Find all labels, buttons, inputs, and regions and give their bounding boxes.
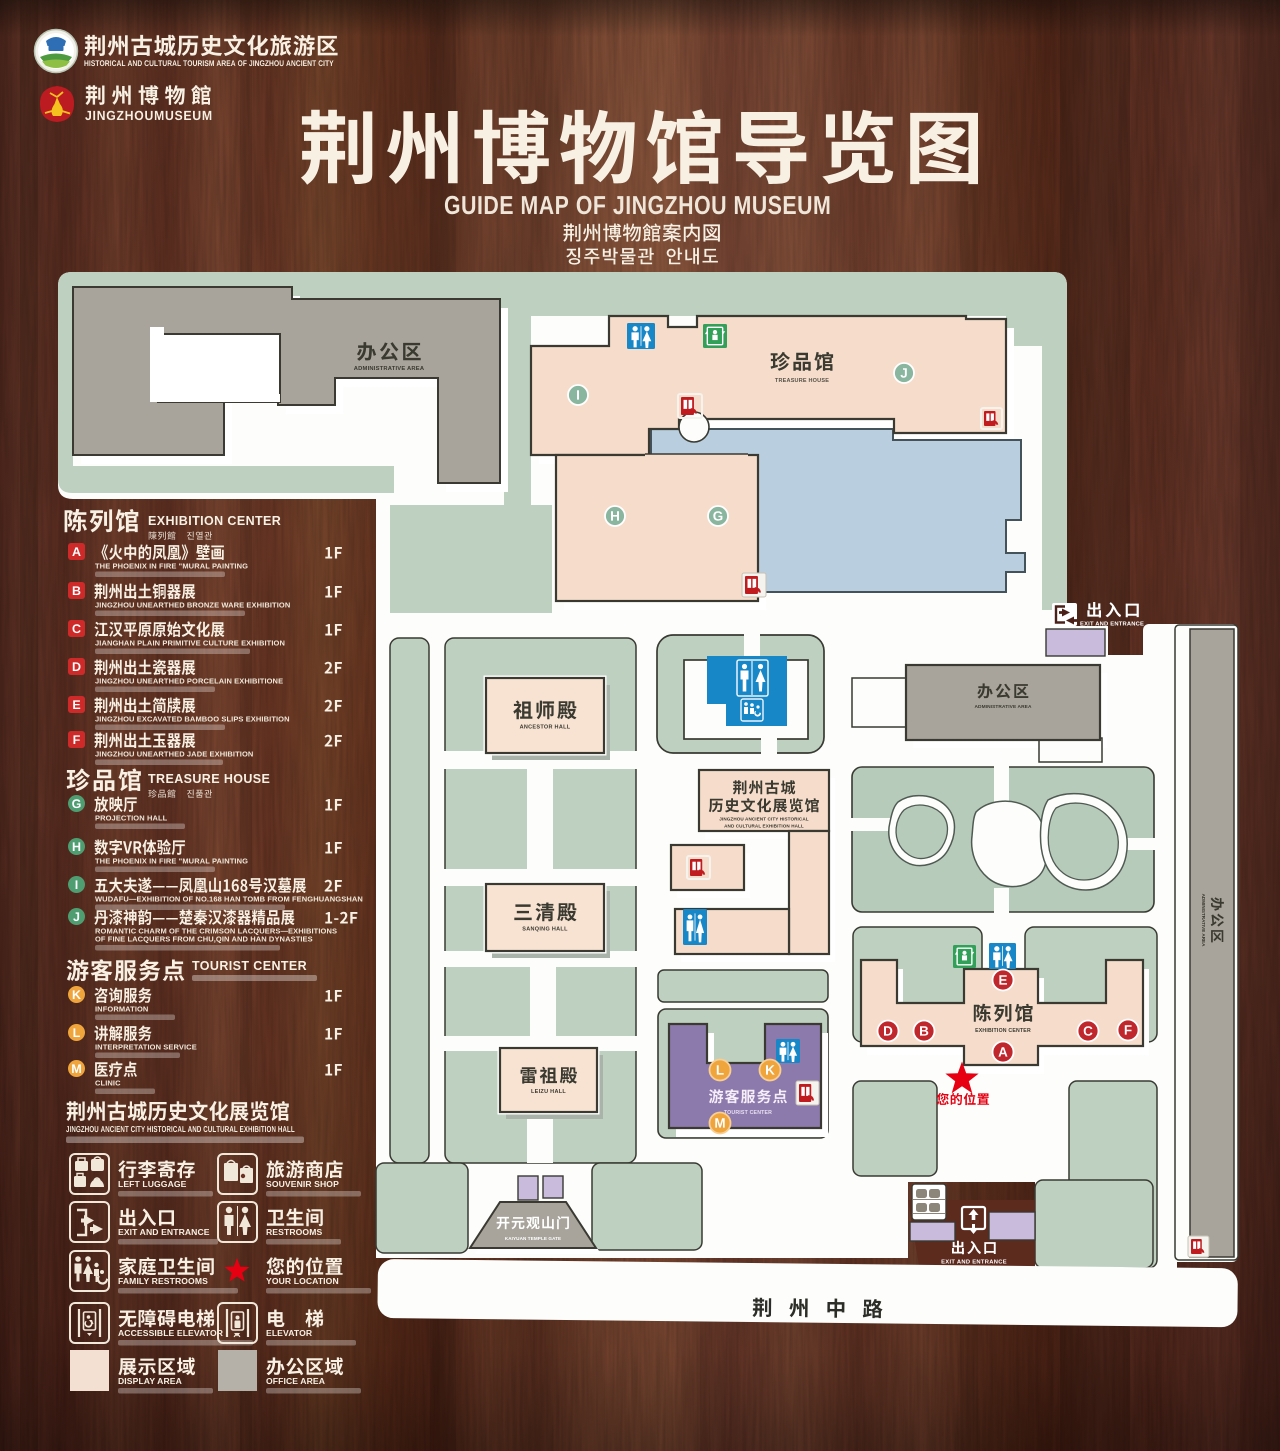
svg-text:EXIT AND ENTRANCE: EXIT AND ENTRANCE xyxy=(1080,622,1144,628)
svg-text:PROJECTION HALL: PROJECTION HALL xyxy=(95,814,168,823)
svg-text:TREASURE HOUSE: TREASURE HOUSE xyxy=(148,772,270,786)
svg-text:FAMILY RESTROOMS: FAMILY RESTROOMS xyxy=(118,1276,208,1286)
svg-text:EXIT AND ENTRANCE: EXIT AND ENTRANCE xyxy=(118,1227,210,1237)
svg-text:WUDAFU—EXHIBITION OF NO.168 HA: WUDAFU—EXHIBITION OF NO.168 HAN TOMB FRO… xyxy=(95,895,363,904)
svg-text:JINGZHOU EXCAVATED BAMBOO SLIP: JINGZHOU EXCAVATED BAMBOO SLIPS EXHIBITI… xyxy=(95,715,290,724)
svg-text:TOURIST CENTER: TOURIST CENTER xyxy=(724,1110,772,1116)
svg-text:KAIYUAN TEMPLE GATE: KAIYUAN TEMPLE GATE xyxy=(505,1236,561,1241)
svg-text:TOURIST CENTER: TOURIST CENTER xyxy=(192,959,307,973)
svg-text:INFORMATION: INFORMATION xyxy=(95,1005,148,1014)
svg-text:THE PHOENIX IN FIRE "MURAL PAI: THE PHOENIX IN FIRE "MURAL PAINTING xyxy=(95,562,248,571)
svg-text:CLINIC: CLINIC xyxy=(95,1079,121,1088)
svg-text:JINGZHOU UNEARTHED PORCELAIN E: JINGZHOU UNEARTHED PORCELAIN EXHIBITIONE xyxy=(95,677,283,686)
svg-text:SANQING HALL: SANQING HALL xyxy=(522,927,568,933)
svg-text:ADMINISTRATIVE AREA: ADMINISTRATIVE AREA xyxy=(1201,894,1206,948)
svg-text:ADMINISTRATIVE AREA: ADMINISTRATIVE AREA xyxy=(974,704,1031,710)
svg-text:JIANGHAN PLAIN PRIMITIVE CULTU: JIANGHAN PLAIN PRIMITIVE CULTURE EXHIBIT… xyxy=(95,639,285,648)
svg-text:OFFICE AREA: OFFICE AREA xyxy=(266,1376,325,1386)
svg-text:LEFT LUGGAGE: LEFT LUGGAGE xyxy=(118,1179,187,1189)
svg-text:THE PHOENIX IN FIRE "MURAL PAI: THE PHOENIX IN FIRE "MURAL PAINTING xyxy=(95,857,248,866)
svg-text:LEIZU HALL: LEIZU HALL xyxy=(531,1089,566,1095)
svg-text:EXIT AND ENTRANCE: EXIT AND ENTRANCE xyxy=(941,1260,1007,1266)
svg-text:JINGZHOU ANCIENT CITY HISTORIC: JINGZHOU ANCIENT CITY HISTORICAL xyxy=(719,817,808,822)
svg-text:INTERPRETATION SERVICE: INTERPRETATION SERVICE xyxy=(95,1043,197,1052)
svg-text:RESTROOMS: RESTROOMS xyxy=(266,1227,322,1237)
svg-text:EXHIBITION CENTER: EXHIBITION CENTER xyxy=(148,514,281,528)
svg-text:JINGZHOU UNEARTHED BRONZE WARE: JINGZHOU UNEARTHED BRONZE WARE EXHIBITIO… xyxy=(95,601,290,610)
svg-text:ADMINISTRATIVE AREA: ADMINISTRATIVE AREA xyxy=(354,366,425,372)
svg-text:ANCESTOR HALL: ANCESTOR HALL xyxy=(520,725,571,731)
svg-text:SOUVENIR SHOP: SOUVENIR SHOP xyxy=(266,1179,339,1189)
svg-text:ELEVATOR: ELEVATOR xyxy=(266,1328,313,1338)
svg-text:EXHIBITION CENTER: EXHIBITION CENTER xyxy=(975,1028,1031,1034)
svg-text:JINGZHOU UNEARTHED JADE EXHIBI: JINGZHOU UNEARTHED JADE EXHIBITION xyxy=(95,750,253,759)
svg-text:OF FINE LACQUERS FROM CHU,QIN: OF FINE LACQUERS FROM CHU,QIN AND HAN DY… xyxy=(95,935,313,944)
svg-text:DISPLAY AREA: DISPLAY AREA xyxy=(118,1376,182,1386)
svg-text:YOUR LOCATION: YOUR LOCATION xyxy=(266,1276,339,1286)
svg-text:TREASURE HOUSE: TREASURE HOUSE xyxy=(775,378,829,384)
svg-text:ACCESSIBLE ELEVATOR: ACCESSIBLE ELEVATOR xyxy=(118,1328,224,1338)
svg-text:AND CULTURAL EXHIBITION HALL: AND CULTURAL EXHIBITION HALL xyxy=(724,824,804,829)
